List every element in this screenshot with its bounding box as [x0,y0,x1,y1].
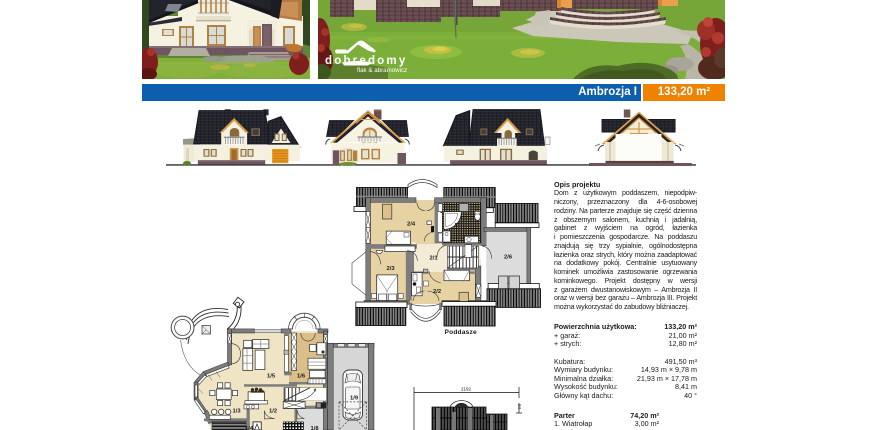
svg-text:dobredomy: dobredomy [325,55,407,67]
svg-text:flak & abramowicz: flak & abramowicz [357,67,407,74]
svg-text:1/4: 1/4 [245,426,254,430]
svg-text:1/9: 1/9 [350,396,359,402]
svg-text:2/6: 2/6 [504,255,513,261]
svg-text:2/1: 2/1 [430,256,439,262]
svg-text:2/2: 2/2 [433,289,441,295]
svg-text:1/2: 1/2 [269,408,277,414]
svg-text:1/6: 1/6 [297,373,306,379]
svg-text:2/3: 2/3 [387,266,396,272]
svg-text:1/5: 1/5 [267,373,276,379]
svg-text:2192: 2192 [461,387,472,392]
svg-text:2/4: 2/4 [407,222,416,228]
svg-text:1/8: 1/8 [311,426,320,430]
svg-text:94: 94 [517,404,522,410]
svg-text:1/3: 1/3 [233,409,242,415]
